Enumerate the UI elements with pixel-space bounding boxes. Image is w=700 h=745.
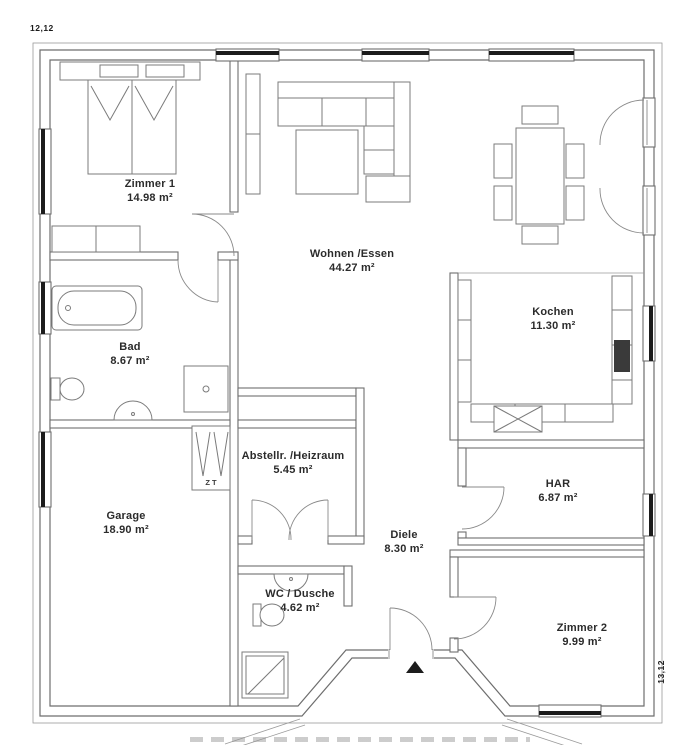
room-area: 8.67 m² xyxy=(110,355,149,369)
room-label-wc-dusche: WC / Dusche 4.62 m² xyxy=(265,588,334,615)
shelf xyxy=(246,74,260,194)
room-label-wohnen-essen: Wohnen /Essen 44.27 m² xyxy=(310,248,394,275)
room-area: 9.99 m² xyxy=(557,636,608,650)
dimension-height-label: 13,12 xyxy=(656,660,666,684)
room-area: 6.87 m² xyxy=(538,492,577,506)
kitchen-sink xyxy=(614,340,630,372)
room-label-zimmer1: Zimmer 1 14.98 m² xyxy=(125,178,176,205)
bed xyxy=(60,62,200,174)
kitchen-counters xyxy=(458,276,632,432)
room-area: 11.30 m² xyxy=(530,320,575,334)
room-label-bad: Bad 8.67 m² xyxy=(110,341,149,368)
room-area: 14.98 m² xyxy=(125,192,176,206)
room-name: Kochen xyxy=(530,306,575,320)
floor-plan: Zimmer 1 14.98 m² Wohnen /Essen 44.27 m²… xyxy=(0,0,700,745)
dimension-width-label: 12,12 xyxy=(30,23,54,33)
room-label-diele: Diele 8.30 m² xyxy=(384,529,423,556)
room-label-garage: Garage 18.90 m² xyxy=(103,510,149,537)
room-area: 44.27 m² xyxy=(310,262,394,276)
room-name: Wohnen /Essen xyxy=(310,248,394,262)
room-name: HAR xyxy=(538,478,577,492)
room-label-zimmer2: Zimmer 2 9.99 m² xyxy=(557,622,608,649)
room-name: Zimmer 1 xyxy=(125,178,176,192)
bathtub xyxy=(52,286,142,330)
entrance-arrow-icon xyxy=(406,661,424,673)
room-name: Bad xyxy=(110,341,149,355)
room-name: WC / Dusche xyxy=(265,588,334,602)
room-area: 5.45 m² xyxy=(242,464,345,478)
room-name: Diele xyxy=(384,529,423,543)
room-area: 4.62 m² xyxy=(265,602,334,616)
room-area: 18.90 m² xyxy=(103,524,149,538)
room-name: Garage xyxy=(103,510,149,524)
room-label-har: HAR 6.87 m² xyxy=(538,478,577,505)
room-name: Zimmer 2 xyxy=(557,622,608,636)
room-label-kochen: Kochen 11.30 m² xyxy=(530,306,575,333)
dining-table xyxy=(494,106,584,244)
room-area: 8.30 m² xyxy=(384,543,423,557)
coffee-table xyxy=(296,130,358,194)
wardrobe xyxy=(52,226,140,252)
sink-bad xyxy=(114,401,152,420)
shower-bad xyxy=(184,366,228,412)
chimney-label: ZT xyxy=(205,478,218,487)
cut-off-caption-strip xyxy=(190,737,530,742)
toilet-bad xyxy=(51,378,84,400)
room-name: Abstellr. /Heizraum xyxy=(242,450,345,464)
shower-wc xyxy=(242,652,288,698)
room-label-abstellraum: Abstellr. /Heizraum 5.45 m² xyxy=(242,450,345,477)
